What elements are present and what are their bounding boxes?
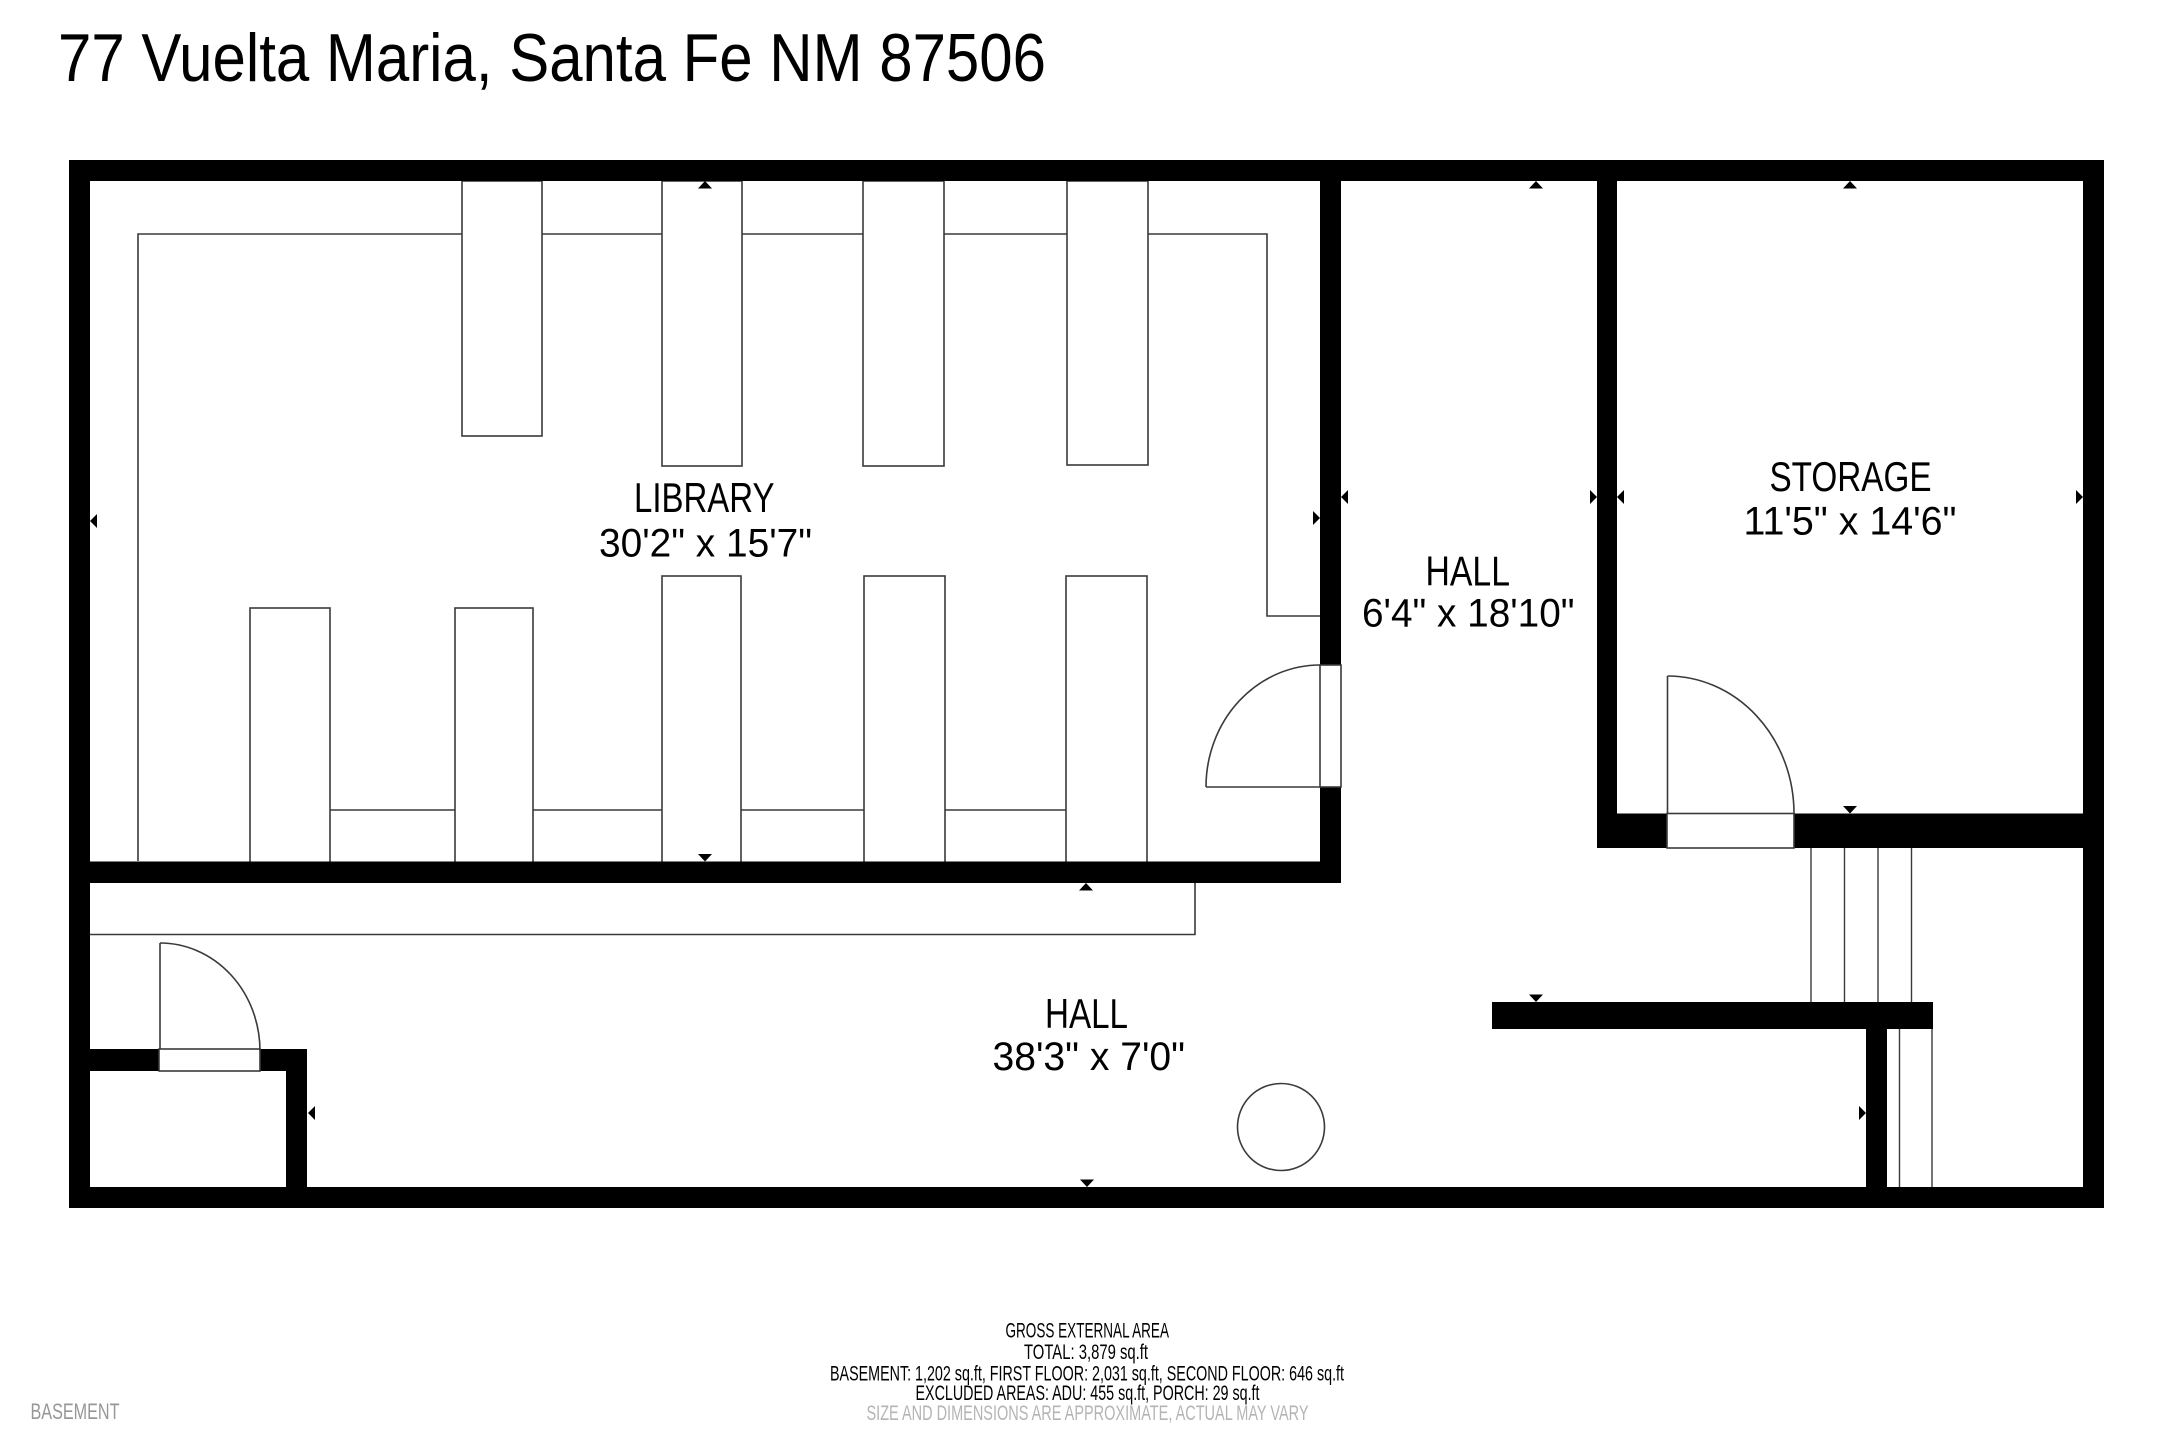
- svg-text:SIZE AND DIMENSIONS ARE APPROX: SIZE AND DIMENSIONS ARE APPROXIMATE, ACT…: [867, 1402, 1309, 1425]
- svg-text:30'2" x 15'7": 30'2" x 15'7": [599, 522, 812, 566]
- svg-text:6'4" x 18'10": 6'4" x 18'10": [1362, 592, 1575, 636]
- svg-text:TOTAL: 3,879 sq.ft: TOTAL: 3,879 sq.ft: [1024, 1341, 1148, 1364]
- svg-text:77 Vuelta Maria, Santa Fe NM 8: 77 Vuelta Maria, Santa Fe NM 87506: [58, 20, 1046, 96]
- svg-text:STORAGE: STORAGE: [1770, 453, 1932, 500]
- svg-text:BASEMENT: BASEMENT: [31, 1399, 120, 1424]
- svg-text:HALL: HALL: [1426, 548, 1511, 595]
- svg-text:11'5" x 14'6": 11'5" x 14'6": [1744, 500, 1957, 544]
- svg-text:HALL: HALL: [1045, 990, 1128, 1037]
- svg-text:38'3" x 7'0": 38'3" x 7'0": [993, 1035, 1186, 1079]
- svg-text:LIBRARY: LIBRARY: [634, 474, 775, 521]
- svg-text:GROSS EXTERNAL AREA: GROSS EXTERNAL AREA: [1006, 1320, 1170, 1343]
